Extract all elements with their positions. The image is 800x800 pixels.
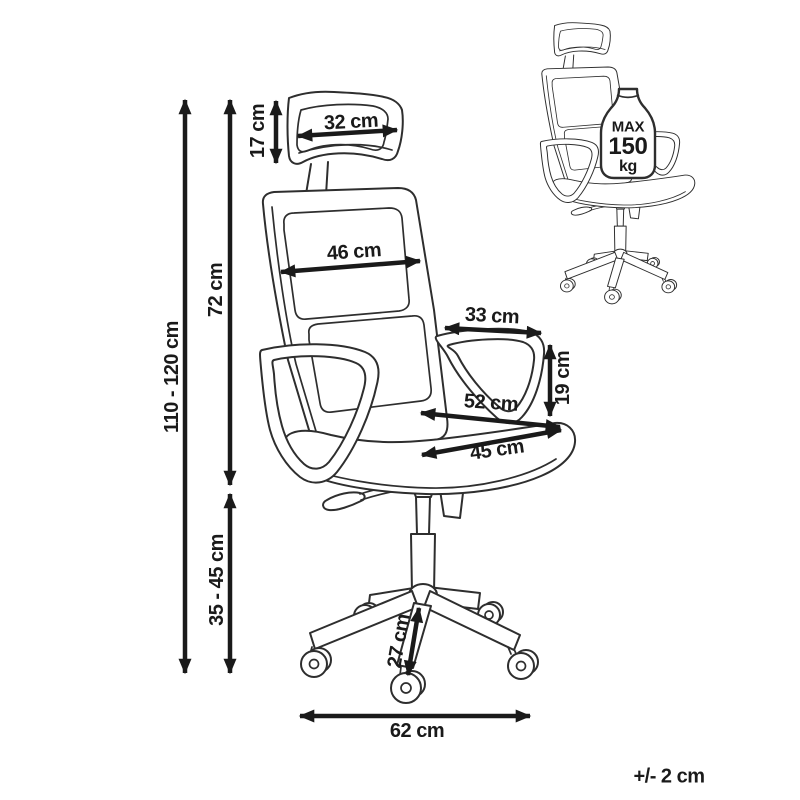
dim-armrest-depth-label: 33 cm bbox=[464, 305, 519, 328]
weight-unit-label: kg bbox=[619, 159, 637, 175]
dim-armrest-height-label: 19 cm bbox=[553, 351, 573, 405]
dim-seat-height-label: 35 - 45 cm bbox=[207, 534, 227, 626]
dim-headrest-height-label: 17 cm bbox=[248, 104, 268, 158]
dim-headrest-width-label: 32 cm bbox=[323, 111, 378, 134]
dim-total-height-label: 110 - 120 cm bbox=[162, 321, 182, 433]
chair-line-art bbox=[0, 0, 800, 800]
chair-dimension-diagram: 110 - 120 cm 72 cm 35 - 45 cm 17 cm 32 c… bbox=[0, 0, 800, 800]
dim-backrest-height-label: 72 cm bbox=[206, 263, 226, 317]
tolerance-note: +/- 2 cm bbox=[633, 766, 704, 789]
dim-backrest-width-label: 46 cm bbox=[326, 240, 381, 264]
weight-value-label: 150 bbox=[608, 135, 647, 159]
dim-base-width-label: 62 cm bbox=[390, 721, 444, 741]
dim-seat-depth-label: 52 cm bbox=[463, 391, 518, 415]
